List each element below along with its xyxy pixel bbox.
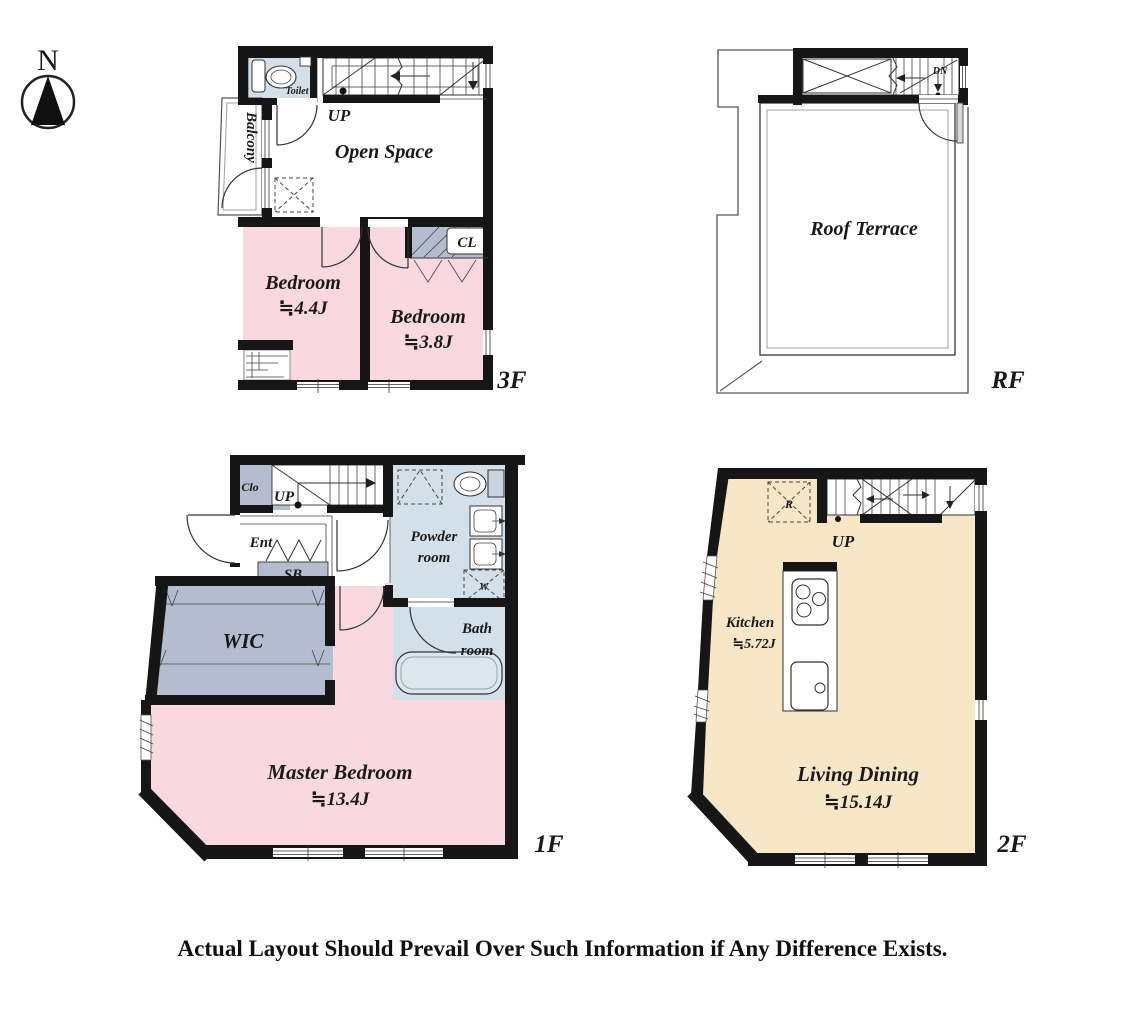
dn-label: DN (932, 66, 948, 77)
floor-plan-3f: Toilet Balcony UP Open Space Bedroom ≒4.… (218, 46, 527, 394)
bedroom-b-label: Bedroom (389, 306, 466, 328)
roof-terrace-label: Roof Terrace (809, 218, 918, 240)
floor-label-2f: 2F (996, 831, 1027, 858)
north-compass: N (22, 44, 74, 128)
fridge-label: R (784, 497, 793, 511)
toilet-label: Toilet (286, 86, 310, 97)
open-space-hatch-box (275, 178, 313, 212)
up-label-1f: UP (274, 489, 295, 505)
bedroom-b-size: ≒3.8J (403, 332, 453, 353)
north-label: N (37, 44, 59, 77)
bedroom-a-size: ≒4.4J (278, 298, 328, 319)
powder-label-1: Powder (411, 529, 458, 545)
master-bedroom-size: ≒13.4J (311, 789, 370, 810)
sb-label: SB (284, 567, 302, 583)
up-label-3f: UP (328, 106, 351, 125)
powder-label-2: room (418, 550, 451, 566)
floor-label-3f: 3F (496, 367, 527, 394)
bath-label-2: room (461, 643, 494, 659)
open-space-label: Open Space (335, 141, 433, 163)
bedroom-a-label: Bedroom (264, 272, 341, 294)
bedroom-a-nook (244, 350, 290, 380)
balcony-label: Balcony (243, 111, 259, 163)
clo-label: Clo (241, 480, 258, 494)
stove-icon (792, 579, 828, 625)
washer-label: W (480, 582, 490, 593)
floor-plan-rf: Roof Terrace DN RF (717, 48, 1025, 394)
floor-plan-drawing: N (0, 0, 1125, 1018)
floor-plan-page: N (0, 0, 1125, 1018)
kitchen-label: Kitchen (725, 615, 774, 631)
floor-plan-1f: Clo UP Ent SB WIC Powder room W Bath roo… (140, 455, 564, 861)
cl-label: CL (457, 235, 476, 251)
kitchen-island (783, 562, 837, 711)
hatched-window-left (140, 715, 153, 760)
kitchen-size: ≒5.72J (732, 637, 776, 652)
disclaimer-text: Actual Layout Should Prevail Over Such I… (0, 936, 1125, 962)
bath-label-1: Bath (461, 621, 492, 637)
wic-label: WIC (223, 629, 265, 653)
floor-label-rf: RF (990, 367, 1025, 394)
staircase-3f (323, 58, 487, 95)
living-dining-label: Living Dining (796, 762, 919, 786)
floor-plan-2f: UP R Kitchen ≒5.72J Living Dining ≒15.14… (691, 468, 1027, 868)
master-bedroom-label: Master Bedroom (266, 760, 412, 784)
ent-label: Ent (249, 535, 273, 551)
living-dining-size: ≒15.14J (824, 792, 893, 813)
floor-label-1f: 1F (534, 831, 564, 858)
sink-icon (791, 662, 828, 710)
up-label-2f: UP (832, 532, 855, 551)
